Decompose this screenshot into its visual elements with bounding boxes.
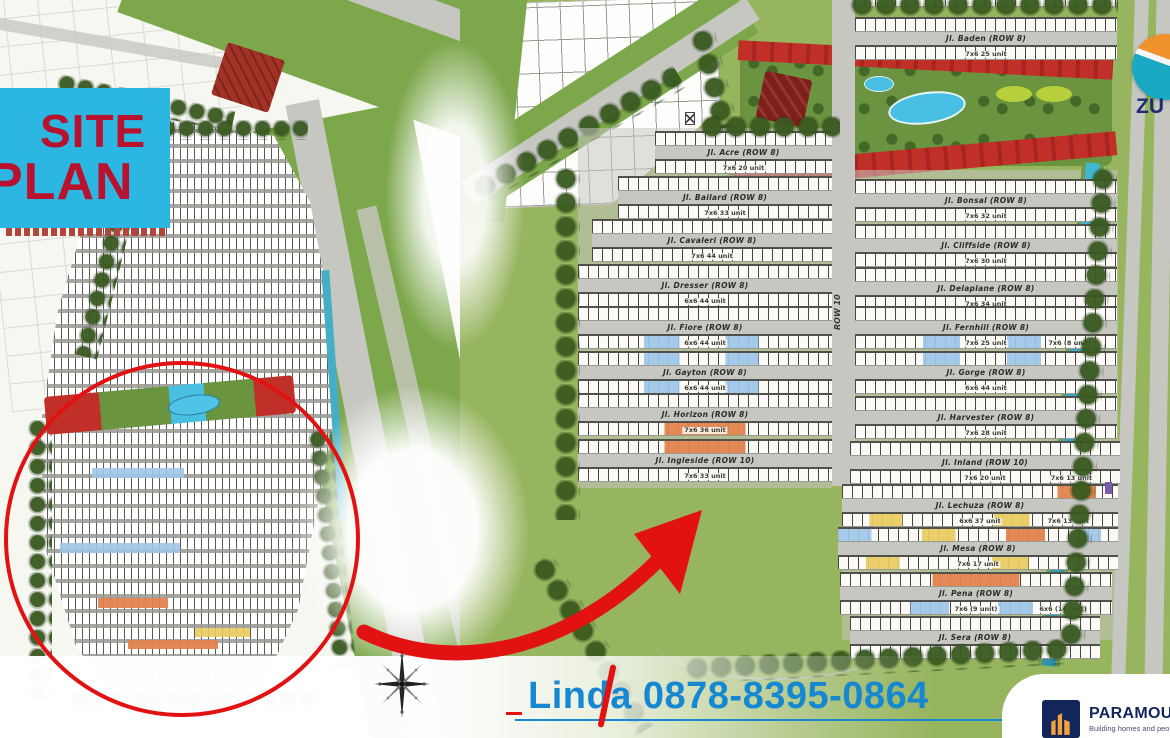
paramount-name: PARAMOUNT	[1089, 706, 1170, 722]
street-name-label: Jl. Mesa (ROW 8)	[940, 545, 1015, 553]
tree-row	[158, 120, 308, 140]
units-label: 6x6 44 unit	[682, 340, 727, 347]
zoom-highlight-circle	[4, 361, 360, 717]
street-row-horizon: Jl. Horizon (ROW 8) 7x6 36 unit	[578, 393, 832, 436]
house-strip	[592, 219, 832, 234]
units-label: 7x6 (9 unit)	[953, 606, 1000, 613]
street-road: Jl. Dresser (ROW 8)	[578, 279, 832, 292]
street-row-delaplane: Jl. Delaplane (ROW 8) 7x6 34 unit	[855, 267, 1117, 310]
street-row-fernhill: Jl. Fernhill (ROW 8) 7x6 25 unit7x6 (8 u…	[855, 306, 1117, 349]
units-label: 7x6 20 unit	[962, 475, 1007, 482]
units-label: 7x6 44 unit	[689, 253, 734, 260]
house-strip: 7x6 30 unit	[855, 252, 1117, 267]
street-name-label: Jl. Pena (ROW 8)	[939, 590, 1013, 598]
units-label: 6x6 44 unit	[963, 385, 1008, 392]
contact-banner: Linda 0878-8395-0864	[528, 676, 929, 718]
street-row-cliffside: Jl. Cliffside (ROW 8) 7x6 30 unit	[855, 224, 1117, 267]
house-strip: 6x6 44 unit	[578, 334, 832, 349]
street-road: Jl. Bailard (ROW 8)	[618, 191, 832, 204]
units-label: 6x6 37 unit	[957, 518, 1002, 525]
street-row-bonsal: Jl. Bonsal (ROW 8) 7x6 32 unit	[855, 179, 1117, 222]
street-name-label: Jl. Acre (ROW 8)	[707, 149, 779, 157]
central-road-label: ROW 10	[834, 294, 842, 330]
units-label: 7x6 25 unit	[963, 340, 1008, 347]
units-label: 7x6 17 unit	[955, 561, 1000, 568]
street-road: Jl. Cliffside (ROW 8)	[855, 239, 1117, 252]
street-row-dresser: Jl. Dresser (ROW 8) 6x6 44 unit	[578, 264, 832, 307]
street-name-label: Jl. Harvester (ROW 8)	[938, 414, 1035, 422]
white-haze	[385, 40, 525, 350]
site-plan-badge: SITE PLAN	[0, 88, 170, 228]
house-strip	[855, 306, 1117, 321]
street-road: Jl. Cavaleri (ROW 8)	[592, 234, 832, 247]
street-name-label: Jl. Ingleside (ROW 10)	[655, 457, 754, 465]
street-road: Jl. Ingleside (ROW 10)	[578, 454, 832, 467]
tree-row	[850, 0, 1118, 18]
house-strip: 7x6 25 unit	[855, 45, 1117, 60]
street-name-label: Jl. Gayton (ROW 8)	[663, 369, 747, 377]
street-road: Jl. Gayton (ROW 8)	[578, 366, 832, 379]
street-road: Jl. Acre (ROW 8)	[655, 146, 832, 159]
paramount-building-icon	[1042, 700, 1080, 738]
house-strip	[578, 439, 832, 454]
units-label: 7x6 32 unit	[963, 213, 1008, 220]
tree-row	[700, 116, 840, 138]
paramount-text-group: PARAMOUNT Building homes and people	[1089, 706, 1170, 733]
house-strip	[578, 351, 832, 366]
street-name-label: Jl. Lechuza (ROW 8)	[936, 502, 1025, 510]
street-row-gayton: Jl. Gayton (ROW 8) 6x6 44 unit	[578, 351, 832, 394]
street-name-label: Jl. Cliffside (ROW 8)	[941, 242, 1031, 250]
lawn-oval	[1036, 86, 1072, 102]
house-strip	[578, 393, 832, 408]
compass-rose-icon	[372, 648, 432, 720]
street-row-bailard: Jl. Bailard (ROW 8) 7x6 33 unit	[618, 176, 832, 219]
street-name-label: Jl. Bailard (ROW 8)	[683, 194, 767, 202]
street-row-baden: Jl. Baden (ROW 8) 7x6 25 unit	[855, 17, 1117, 60]
house-strip: 7x6 36 unit	[578, 421, 832, 436]
street-road: Jl. Baden (ROW 8)	[855, 32, 1117, 45]
units-label: 7x6 25 unit	[963, 51, 1008, 58]
house-strip: 7x6 33 unit	[618, 204, 832, 219]
street-row-cavaleri: Jl. Cavaleri (ROW 8) 7x6 44 unit	[592, 219, 832, 262]
units-label: 7x6 33 unit	[702, 210, 747, 217]
house-strip	[578, 264, 832, 279]
tree-row	[554, 168, 580, 520]
house-strip	[855, 267, 1117, 282]
units-label: 6x6 44 unit	[682, 298, 727, 305]
street-name-label: Jl. Sera (ROW 8)	[939, 634, 1012, 642]
street-road: Jl. Fiore (ROW 8)	[578, 321, 832, 334]
street-road: Jl. Delaplane (ROW 8)	[855, 282, 1117, 295]
street-name-label: Jl. Baden (ROW 8)	[946, 35, 1026, 43]
units-label: 7x6 30 unit	[963, 258, 1008, 265]
street-road: Jl. Horizon (ROW 8)	[578, 408, 832, 421]
house-strip: 6x6 44 unit	[578, 379, 832, 394]
units-label: 7x6 28 unit	[963, 430, 1008, 437]
unit-patch-purple	[1105, 482, 1112, 494]
red-roof-row	[6, 228, 168, 236]
street-name-label: Jl. Fiore (ROW 8)	[667, 324, 742, 332]
street-name-label: Jl. Horizon (ROW 8)	[662, 411, 749, 419]
house-strip: 6x6 44 unit	[578, 292, 832, 307]
street-name-label: Jl. Inland (ROW 10)	[942, 459, 1028, 467]
red-brush-dash	[506, 712, 522, 715]
house-strip: 7x6 32 unit	[855, 207, 1117, 222]
house-strip: 7x6 20 unit	[655, 159, 832, 174]
street-road: Jl. Bonsal (ROW 8)	[855, 194, 1117, 207]
street-row-fiore: Jl. Fiore (ROW 8) 6x6 44 unit	[578, 306, 832, 349]
badge-line-1: SITE	[40, 107, 170, 155]
development-logo-text: ZU	[1136, 96, 1164, 117]
house-strip	[855, 224, 1117, 239]
street-name-label: Jl. Fernhill (ROW 8)	[943, 324, 1029, 332]
street-name-label: Jl. Dresser (ROW 8)	[662, 282, 749, 290]
house-strip	[618, 176, 832, 191]
street-name-label: Jl. Cavaleri (ROW 8)	[668, 237, 757, 245]
units-label: 6x6 44 unit	[682, 385, 727, 392]
units-label: 7x6 20 unit	[721, 165, 766, 172]
street-name-label: Jl. Gorge (ROW 8)	[946, 369, 1025, 377]
site-plan-graphic: SITE PLAN Jl. Acre (ROW 8) 7x6	[0, 0, 1170, 738]
house-strip	[855, 17, 1117, 32]
pool-small	[864, 76, 894, 92]
units-label: 7x6 36 unit	[682, 427, 727, 434]
house-strip: 7x6 25 unit7x6 (8 unit)	[855, 334, 1117, 349]
paramount-tagline: Building homes and people	[1089, 724, 1170, 733]
street-name-label: Jl. Bonsal (ROW 8)	[945, 197, 1027, 205]
house-strip	[855, 179, 1117, 194]
badge-line-2: PLAN	[0, 155, 170, 210]
house-strip	[578, 306, 832, 321]
street-road: Jl. Fernhill (ROW 8)	[855, 321, 1117, 334]
house-strip: 7x6 44 unit	[592, 247, 832, 262]
paramount-logo-card: PARAMOUNT Building homes and people	[1002, 674, 1170, 738]
street-name-label: Jl. Delaplane (ROW 8)	[937, 285, 1034, 293]
lawn-oval	[996, 86, 1032, 102]
plan-marker	[685, 112, 695, 125]
